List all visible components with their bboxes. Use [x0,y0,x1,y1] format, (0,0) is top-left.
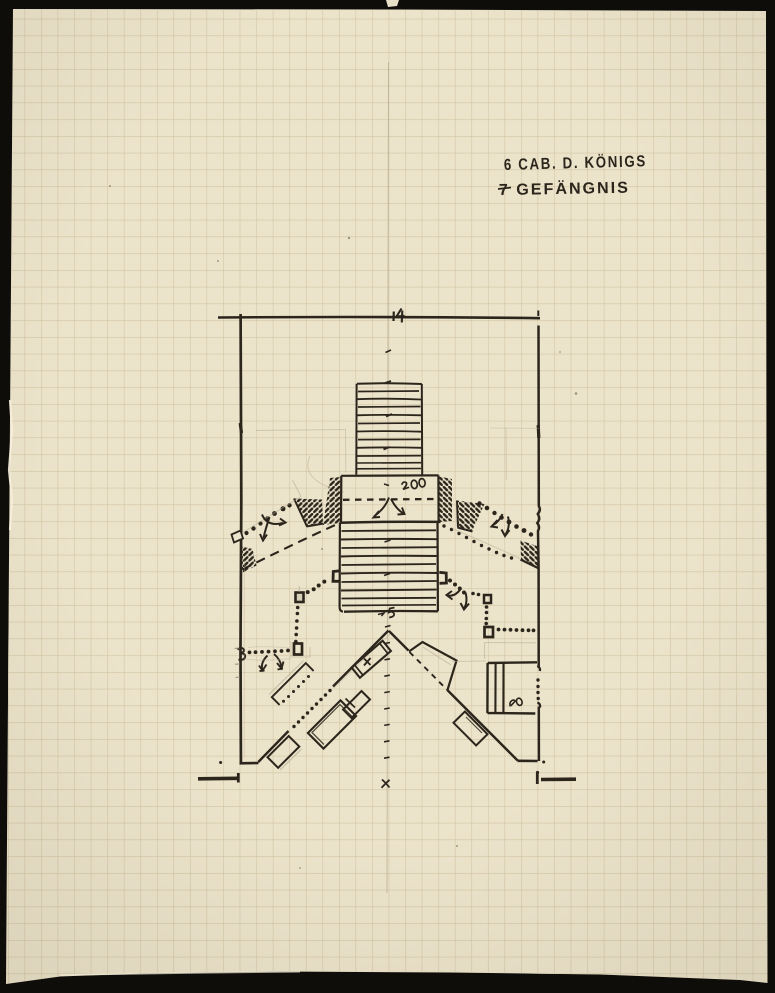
svg-text:7 GEFÄNGNIS: 7 GEFÄNGNIS [499,179,630,199]
